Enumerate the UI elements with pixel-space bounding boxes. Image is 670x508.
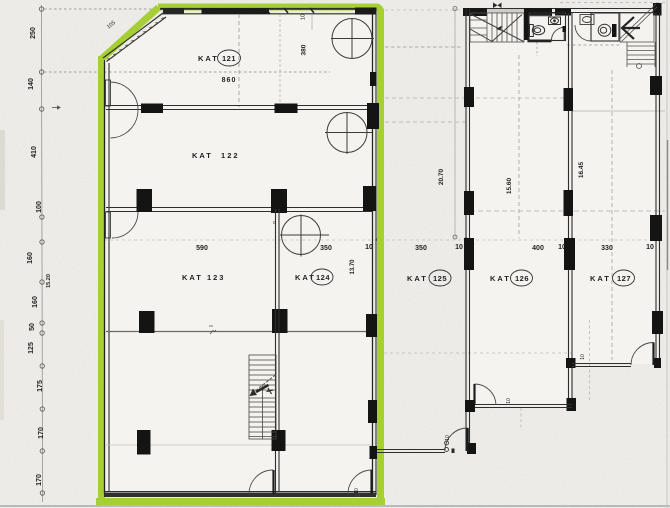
svg-text:KAT: KAT	[490, 274, 511, 283]
svg-text:860: 860	[222, 77, 237, 84]
svg-text:160: 160	[32, 296, 39, 308]
svg-text:20.70: 20.70	[438, 168, 445, 185]
svg-text:350: 350	[320, 245, 332, 252]
svg-text:50: 50	[29, 323, 36, 331]
svg-text:KAT 123: KAT 123	[182, 273, 225, 282]
svg-text:10: 10	[580, 354, 586, 360]
svg-text:15.20: 15.20	[46, 274, 52, 288]
svg-text:KAT: KAT	[407, 274, 428, 283]
svg-text:590: 590	[196, 245, 208, 252]
svg-text:13.70: 13.70	[350, 259, 356, 275]
svg-text:15.60: 15.60	[506, 177, 513, 194]
svg-text:410: 410	[31, 146, 38, 158]
svg-text:10: 10	[354, 488, 360, 494]
svg-text:10: 10	[646, 244, 654, 251]
svg-text:175: 175	[37, 380, 44, 392]
svg-text:127: 127	[617, 274, 631, 283]
svg-text:350: 350	[415, 245, 427, 252]
svg-text:170: 170	[36, 474, 43, 486]
svg-text:100: 100	[36, 201, 43, 213]
svg-text:330: 330	[601, 245, 613, 252]
svg-text:380: 380	[301, 44, 308, 55]
svg-text:250: 250	[30, 27, 37, 39]
svg-text:KAT 122: KAT 122	[192, 151, 240, 160]
svg-text:KAT: KAT	[590, 274, 611, 283]
svg-text:c: c	[273, 220, 276, 226]
svg-text:140: 140	[28, 78, 35, 90]
svg-text:160: 160	[27, 252, 34, 264]
svg-text:10: 10	[455, 244, 463, 251]
svg-text:KAT: KAT	[198, 54, 219, 63]
svg-text:125: 125	[28, 342, 35, 354]
svg-text:126: 126	[515, 274, 529, 283]
svg-text:121: 121	[222, 54, 236, 63]
svg-text:10: 10	[365, 244, 373, 251]
svg-text:400: 400	[532, 245, 544, 252]
svg-text:10: 10	[506, 398, 512, 404]
svg-text:125: 125	[433, 274, 447, 283]
svg-text:10: 10	[301, 14, 307, 20]
svg-text:124: 124	[316, 273, 330, 282]
svg-text:170: 170	[38, 427, 45, 439]
svg-text:16.45: 16.45	[578, 161, 585, 178]
svg-text:10: 10	[445, 435, 451, 441]
